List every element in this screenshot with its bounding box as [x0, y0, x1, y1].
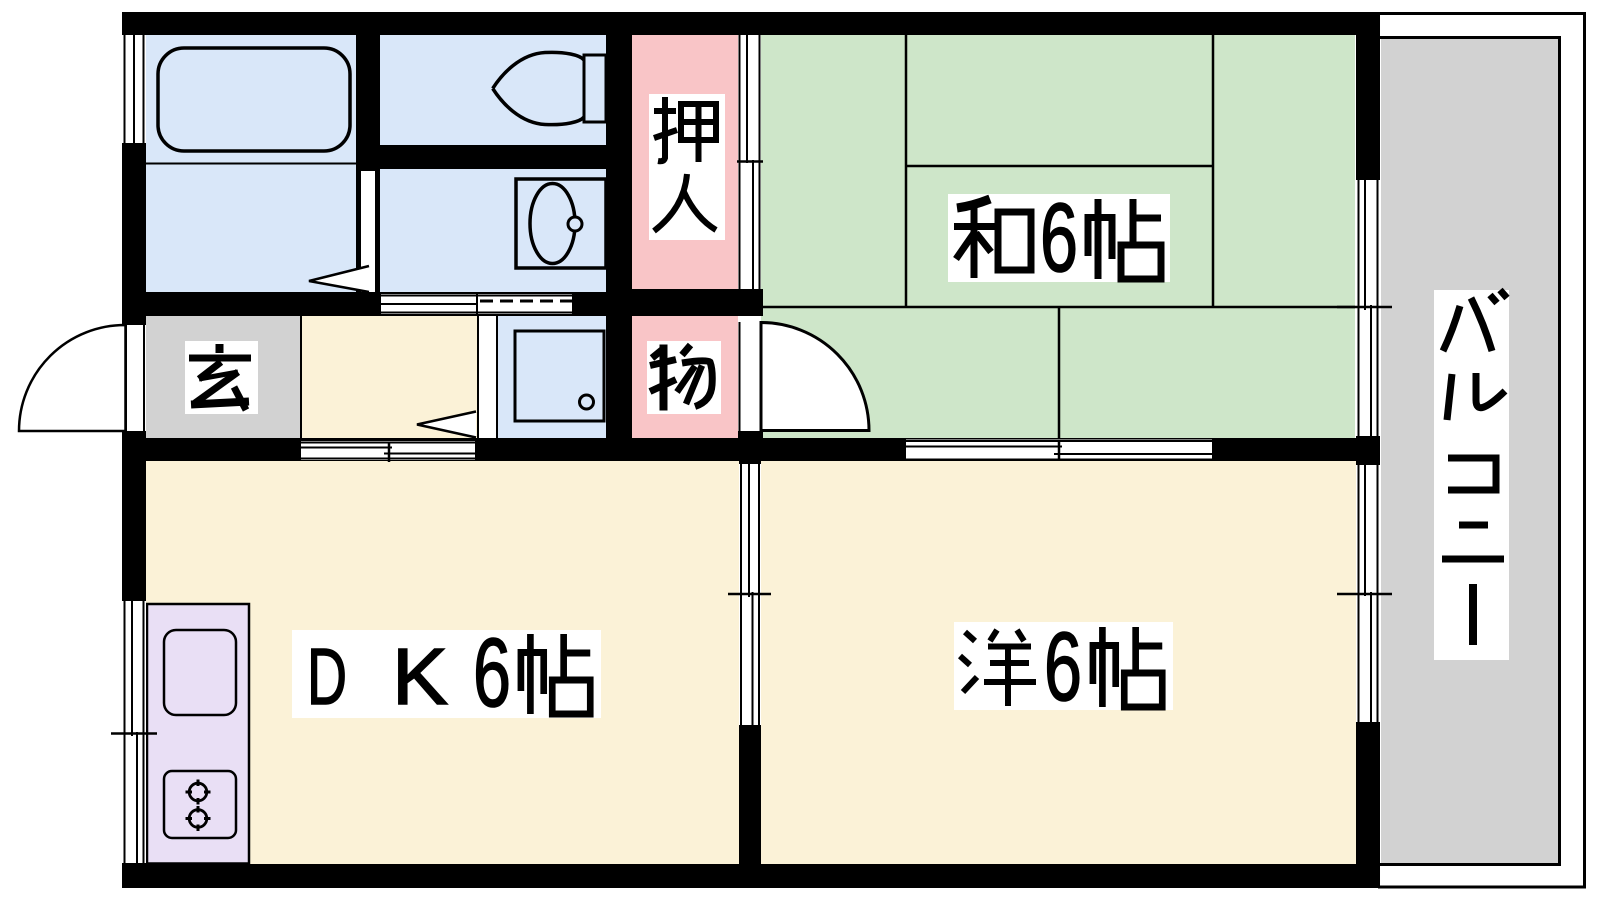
svg-text:6: 6 — [1040, 183, 1078, 292]
svg-text:K: K — [392, 632, 448, 721]
svg-text:6: 6 — [1044, 612, 1082, 721]
svg-text:6: 6 — [473, 618, 511, 727]
svg-text:D: D — [307, 632, 347, 721]
